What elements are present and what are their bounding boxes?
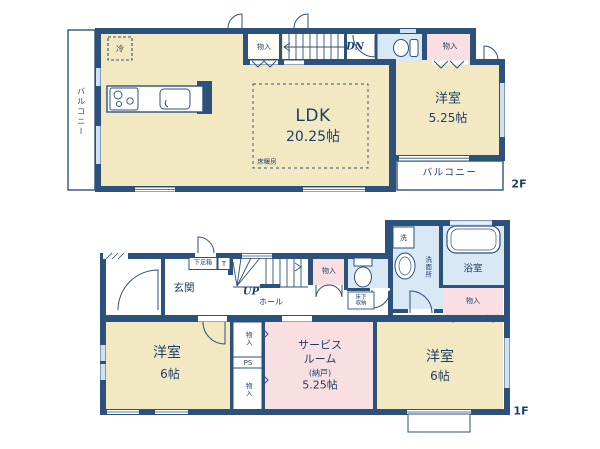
washer-label: 洗 xyxy=(400,234,407,242)
t-box-label: T xyxy=(222,259,226,267)
hall-label: ホール xyxy=(259,297,283,306)
floor-plan-drawing xyxy=(0,0,600,449)
service-room-line2: ルーム xyxy=(304,354,337,367)
toilet-tank-1f xyxy=(354,258,372,266)
ldk-size-label: 20.25帖 xyxy=(286,129,340,145)
bedroom-2f-name-label: 洋室 xyxy=(435,93,461,108)
ldk-name-label: LDK xyxy=(295,107,330,127)
bedroom-2f-size-label: 5.25帖 xyxy=(429,112,468,126)
fridge-label: 冷 xyxy=(116,44,124,53)
closet-hall-label: 物入 xyxy=(322,267,336,275)
bedroom-left-size-label: 6帖 xyxy=(160,368,180,382)
service-room-line1: サービス xyxy=(298,340,342,353)
service-room-line4: 5.25帖 xyxy=(302,380,338,393)
service-room-line3: (納戸) xyxy=(309,368,331,377)
closet-bath-label: 物入 xyxy=(466,297,480,305)
balcony-bottom-label: バルコニー xyxy=(423,169,478,180)
closet-2f-right-label: 物入 xyxy=(443,43,458,52)
floor-plan-canvas: バルコニー 物入 DN 物入 冷 LDK 20.25帖 床暖房 洋室 5.25帖… xyxy=(0,0,600,449)
porch-step xyxy=(408,414,470,432)
bathroom-label: 浴室 xyxy=(463,265,482,276)
floor-1f-label: 1F xyxy=(513,406,528,419)
bedroom-right-1f xyxy=(377,322,503,412)
toilet-bowl-1f xyxy=(355,267,372,287)
washroom-label: 洗面所 xyxy=(423,256,430,279)
kitchen-sink xyxy=(160,89,190,109)
bedroom-right-size-label: 6帖 xyxy=(430,370,450,384)
floor-2f-label: 2F xyxy=(511,179,526,192)
closet-2f-left-label: 物入 xyxy=(257,43,271,51)
underfloor-storage-label: 床下 収納 xyxy=(355,294,366,307)
toilet-fixture-2f xyxy=(394,40,419,57)
closet-small-bottom-label: 物入 xyxy=(244,383,251,398)
stairs-dn-label: DN xyxy=(346,41,364,53)
floor-heating-label: 床暖房 xyxy=(257,158,277,165)
closet-small-top-label: 物入 xyxy=(244,332,251,347)
stove xyxy=(110,88,138,110)
pipe-space-label: PS xyxy=(244,358,253,366)
stairs-up-label: UP xyxy=(243,286,259,298)
bedroom-left-name-label: 洋室 xyxy=(153,345,181,361)
entrance-label: 玄関 xyxy=(174,282,195,294)
shoe-box-label: 下足箱 xyxy=(194,260,212,267)
stairs-edge-1f xyxy=(260,284,280,288)
bedroom-right-name-label: 洋室 xyxy=(426,349,454,365)
balcony-left-label: バルコニー xyxy=(76,87,85,137)
floor-1f-plan xyxy=(100,220,510,432)
